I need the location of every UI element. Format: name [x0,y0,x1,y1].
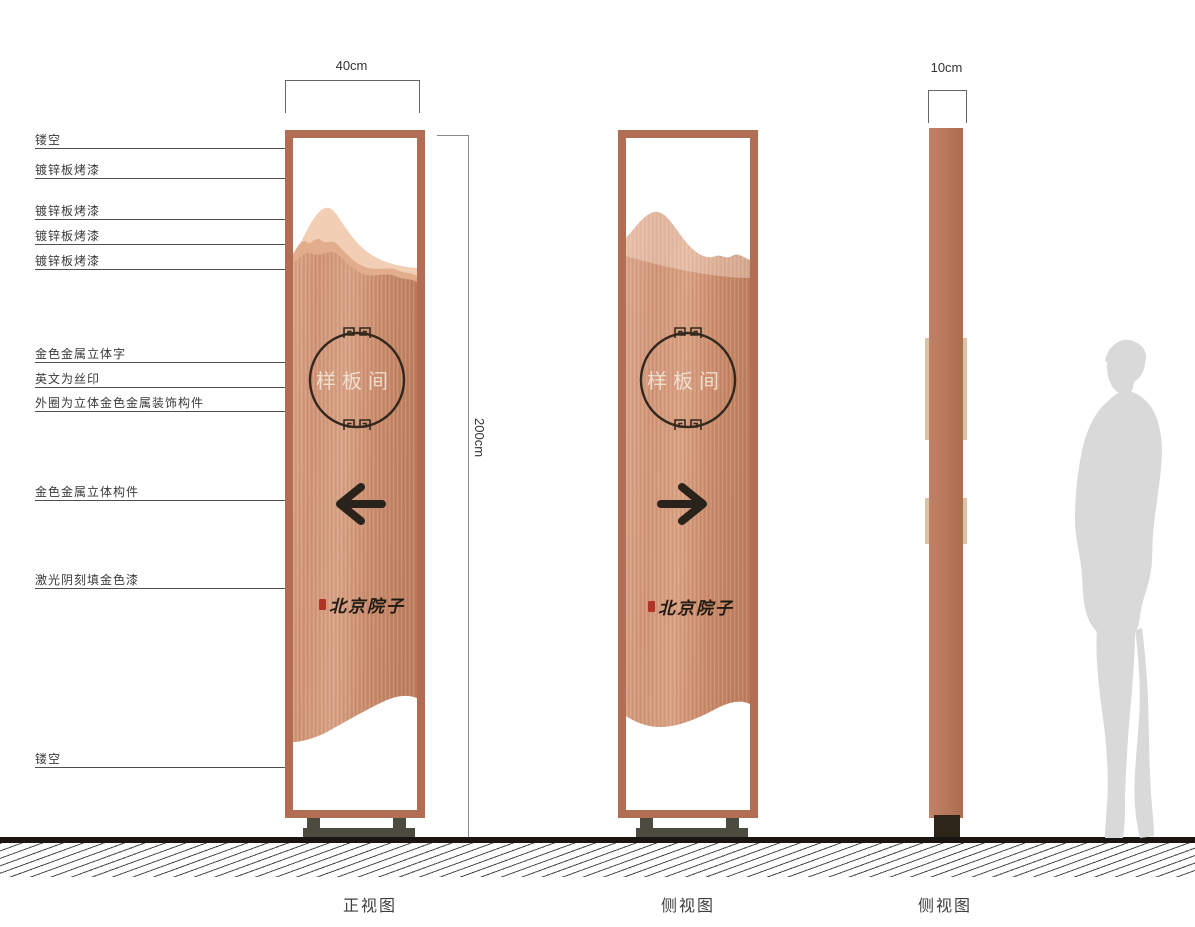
dim-side-width: 10cm [925,60,968,75]
callout-label: 激光阴刻填金色漆 [35,573,139,588]
dim-height-line [468,135,469,838]
callout-galvanized-layer3: 镀锌板烤漆 [35,252,296,270]
brand-text: 北京院子 [329,592,405,617]
room-name-text: 样板间 [647,370,725,393]
brand-calligraphy-front: 北京院子 [300,592,424,617]
ground-hatch [0,843,1195,877]
view-label-side-1: 侧视图 [643,892,733,916]
signage-design-sheet: 镂空 镀锌板烤漆 镀锌板烤漆 镀锌板烤漆 镀锌板烤漆 金色金属立体字 英文为丝印… [0,0,1195,927]
callout-hollow-top: 镂空 [35,131,307,149]
callout-label: 外圈为立体金色金属装饰构件 [35,396,204,411]
callout-label: 镂空 [35,133,61,148]
dim-bracket-front [285,80,420,113]
callout-label: 镂空 [35,752,61,767]
seal-stamp-icon [319,599,326,610]
sign-panel-side: 样板间 [626,138,750,810]
pillar-front-view: 样板间 [285,130,425,818]
callout-laser-engraving: 激光阴刻填金色漆 [35,571,310,589]
pillar-side-view: 样板间 [618,130,758,818]
human-figure-silhouette [1045,336,1180,846]
brand-text: 北京院子 [658,594,734,619]
callout-label: 金色金属立体构件 [35,485,139,500]
dim-front-width: 40cm [285,58,418,73]
view-label-side-2: 侧视图 [900,892,990,916]
sign-face-graphic: 样板间 [626,138,750,810]
view-label-front: 正视图 [325,892,415,916]
callout-label: 镀锌板烤漆 [35,163,100,178]
callout-label: 镀锌板烤漆 [35,204,100,219]
callout-galvanized-layer2: 镀锌板烤漆 [35,227,296,245]
callout-outer-ring: 外圈为立体金色金属装饰构件 [35,394,318,412]
dim-height: 200cm [472,418,487,457]
callout-galvanized-frame: 镀锌板烤漆 [35,161,290,179]
room-name-text: 样板间 [316,370,394,393]
pillar-edge-profile [929,128,963,818]
dim-height-tick [437,135,468,136]
mountain-layers [293,208,417,742]
callout-label: 镀锌板烤漆 [35,254,100,269]
sign-panel-front: 样板间 [293,138,417,810]
mountain-layers [626,212,750,727]
dim-bracket-side [928,90,967,123]
callout-label: 镀锌板烤漆 [35,229,100,244]
callout-label: 英文为丝印 [35,372,100,387]
seal-stamp-icon [648,601,655,612]
brand-calligraphy-side: 北京院子 [633,594,749,619]
callout-label: 金色金属立体字 [35,347,126,362]
sign-face-graphic: 样板间 [293,138,417,810]
